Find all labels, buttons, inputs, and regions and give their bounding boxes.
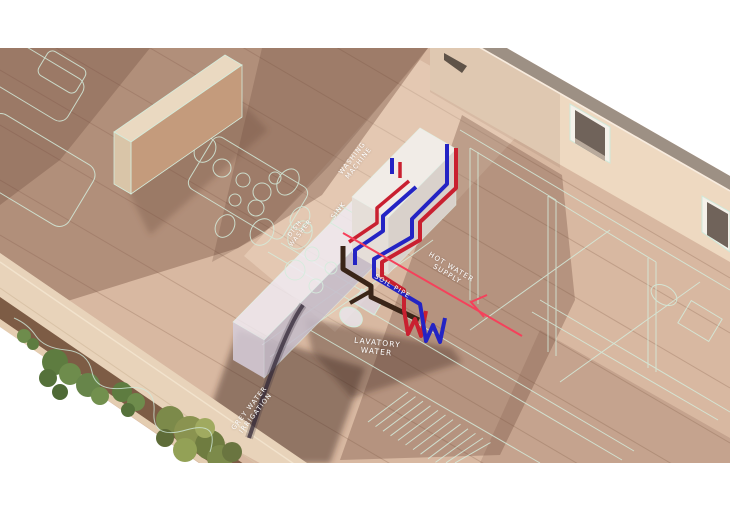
plumbing-axonometric-render: WASHING MACHINE SINK DISH WASHER HOT WAT… [0, 0, 730, 516]
letterbox-bottom [0, 463, 730, 516]
render-canvas [0, 0, 730, 516]
letterbox-top [0, 0, 730, 48]
